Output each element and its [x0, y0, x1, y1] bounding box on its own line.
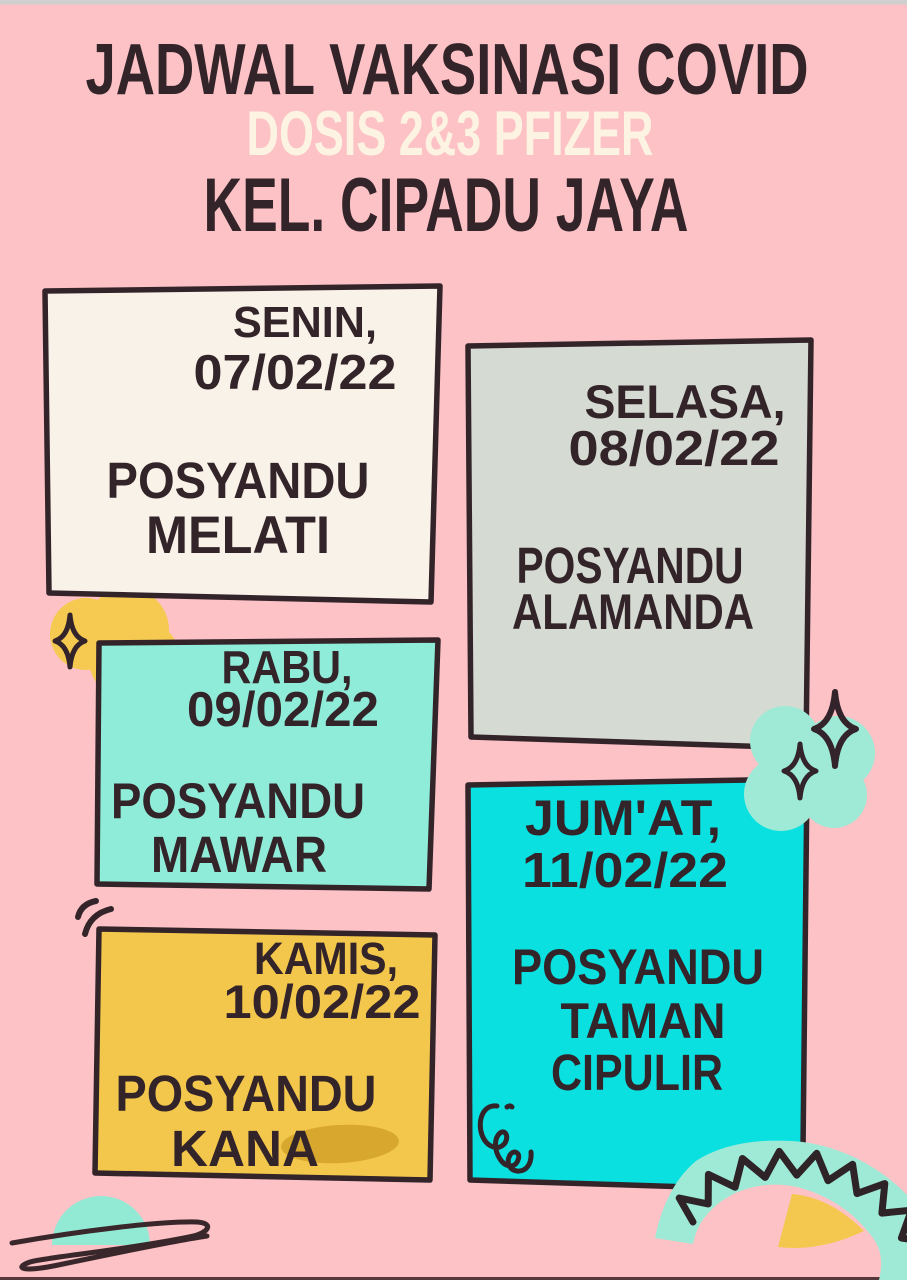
- svg-text:ALAMANDA: ALAMANDA: [512, 584, 754, 640]
- svg-text:SELASA,: SELASA,: [585, 375, 786, 428]
- svg-text:09/02/22: 09/02/22: [187, 683, 379, 737]
- svg-text:KEL. CIPADU JAYA: KEL. CIPADU JAYA: [204, 163, 689, 248]
- svg-text:POSYANDU: POSYANDU: [107, 452, 370, 509]
- svg-text:DOSIS 2&3 PFIZER: DOSIS 2&3 PFIZER: [247, 99, 654, 169]
- svg-text:07/02/22: 07/02/22: [194, 346, 397, 400]
- svg-text:TAMAN: TAMAN: [561, 993, 726, 1049]
- svg-text:CIPULIR: CIPULIR: [551, 1044, 723, 1101]
- svg-text:JADWAL VAKSINASI COVID: JADWAL VAKSINASI COVID: [86, 30, 809, 110]
- svg-text:POSYANDU: POSYANDU: [116, 1065, 377, 1122]
- svg-text:MAWAR: MAWAR: [151, 826, 327, 883]
- svg-text:SENIN,: SENIN,: [233, 298, 377, 347]
- svg-text:10/02/22: 10/02/22: [224, 975, 421, 1028]
- svg-text:POSYANDU: POSYANDU: [512, 939, 764, 995]
- svg-text:08/02/22: 08/02/22: [569, 422, 780, 476]
- svg-text:JUM'AT,: JUM'AT,: [525, 790, 721, 846]
- svg-text:MELATI: MELATI: [146, 506, 330, 565]
- svg-text:11/02/22: 11/02/22: [522, 844, 728, 898]
- svg-text:POSYANDU: POSYANDU: [111, 773, 365, 829]
- svg-text:KANA: KANA: [171, 1120, 319, 1177]
